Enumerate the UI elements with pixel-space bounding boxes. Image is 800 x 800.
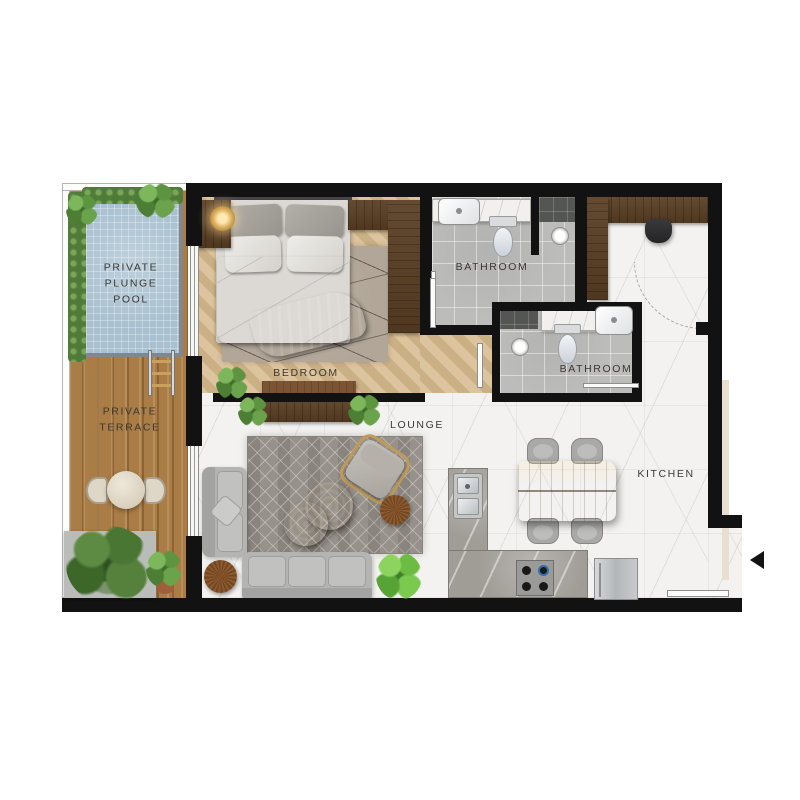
door-leaf-hallway	[477, 343, 483, 388]
bathroom2-label: BATHROOM	[560, 362, 633, 378]
bathroom2-sink-drain	[611, 317, 617, 323]
wall-left-column-mid	[186, 356, 202, 446]
terrace-label: PRIVATE TERRACE	[99, 404, 160, 436]
wall-entry-stub-top	[708, 515, 742, 528]
door-leaf-bathroom1	[430, 278, 436, 328]
tv-console	[262, 399, 356, 422]
wall-bottom	[62, 598, 742, 612]
lounge-plant-console-right	[348, 394, 381, 427]
wall-bathroom1-shower-divider	[531, 197, 539, 255]
terrace-table	[107, 471, 145, 509]
dining-table	[518, 461, 616, 521]
bathroom1-label: BATHROOM	[456, 260, 529, 276]
bathroom1-sink-drain	[456, 208, 462, 214]
potted-plant-pool-corner	[66, 194, 98, 226]
lounge-plant-console-left	[238, 396, 268, 427]
wall-bathroom1-right	[575, 197, 587, 310]
coffee-table-small	[284, 502, 328, 546]
desk-chair	[645, 219, 672, 243]
wall-bathroom2-bottom	[492, 393, 642, 402]
entry-desk-side	[587, 197, 608, 300]
kitchen-hob	[516, 560, 554, 596]
wall-entry-door-stub	[696, 322, 708, 335]
wall-left-column-top	[186, 183, 202, 246]
dining-chair	[527, 518, 559, 544]
kitchen-label: KITCHEN	[637, 467, 694, 483]
bedroom-plant	[216, 366, 248, 400]
lounge-sofa-horizontal	[242, 552, 372, 602]
entry-arrow-icon	[750, 551, 764, 569]
kitchen-sink	[453, 473, 483, 519]
pool-label: PRIVATE PLUNGE POOL	[104, 260, 159, 307]
lounge-plant-bottom	[376, 552, 422, 600]
floor-plan: PRIVATE PLUNGE POOL PRIVATE TERRACE BEDR…	[0, 0, 800, 800]
bed-pillow	[284, 204, 344, 239]
side-table-right	[380, 495, 410, 525]
window-bedroom	[190, 246, 199, 356]
side-table-bottom-left	[204, 560, 237, 593]
bathroom1-toilet	[489, 216, 517, 258]
fridge	[594, 558, 638, 600]
potted-plant-pool-top	[136, 183, 176, 219]
lounge-label: LOUNGE	[390, 418, 444, 434]
bathroom1-shower-niche	[539, 197, 575, 222]
exterior-finish-strip	[722, 380, 729, 580]
bathroom2-towel-rail	[583, 383, 639, 388]
wall-top	[186, 183, 722, 197]
wall-bathroom2-left	[492, 302, 500, 402]
bathroom2-shower-head	[511, 338, 529, 356]
terrace-chair-left	[86, 477, 108, 504]
bathroom1-shower-head	[551, 227, 569, 245]
wall-right	[708, 183, 722, 515]
dining-chair	[571, 518, 603, 544]
entry-threshold	[667, 590, 729, 597]
terrace-tree	[66, 526, 152, 604]
bedroom-label: BEDROOM	[273, 366, 338, 382]
terrace-chair-right	[144, 477, 166, 504]
terrace-potted-plant	[146, 550, 182, 588]
bathroom2-shower-niche	[500, 310, 538, 329]
bedroom-wardrobe	[388, 200, 420, 333]
bedside-shelf-right	[348, 200, 390, 230]
lounge-sofa-vertical	[202, 467, 247, 557]
bathroom2-toilet	[554, 324, 581, 366]
window-lounge	[190, 446, 199, 536]
wall-left-column-bottom	[186, 536, 202, 602]
pool-ladder	[146, 350, 178, 396]
bedside-lamp	[210, 206, 235, 231]
